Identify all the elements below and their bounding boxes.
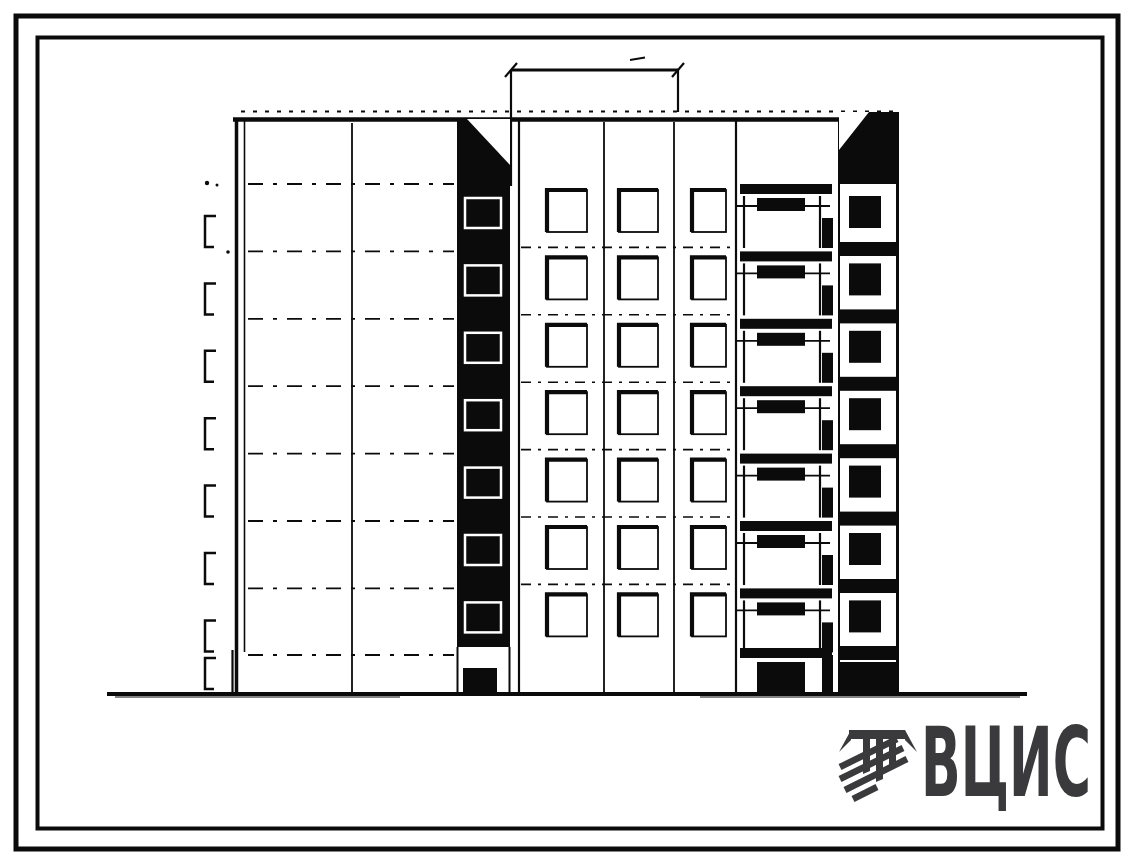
logo-emblem-icon [839, 730, 917, 799]
balcony-door-shadow [757, 198, 805, 211]
loggia-floor-band [839, 444, 897, 458]
loggia-window [849, 600, 881, 632]
balcony-side-shadow [822, 353, 833, 383]
balcony-base-slab [740, 648, 832, 658]
window [547, 594, 587, 636]
balcony-door-shadow [757, 468, 805, 481]
loggia-base-shadow [839, 662, 897, 694]
balcony-door-shadow [757, 602, 805, 615]
loggia-floor-band [839, 579, 897, 593]
window [692, 190, 726, 232]
loggia-window [849, 263, 881, 295]
loggia-floor-band [839, 309, 897, 323]
loggia-floor-band [839, 377, 897, 391]
window [547, 392, 587, 434]
window [619, 392, 658, 434]
scan-speck [226, 250, 230, 254]
balcony-side-shadow [822, 555, 833, 585]
logo-text: ВЦИС [921, 706, 1091, 819]
balcony-slab [740, 588, 832, 598]
loggia-window [849, 196, 881, 228]
window [619, 325, 658, 367]
balcony-base-shadow [822, 655, 833, 694]
loggia-floor-band [839, 242, 897, 256]
loggia-floor-band [839, 512, 897, 526]
window [692, 527, 726, 569]
loggia-base-band [839, 646, 897, 660]
window [692, 392, 726, 434]
balcony-base-shadow [757, 662, 805, 693]
balcony-slab [740, 184, 832, 194]
window [619, 190, 658, 232]
scan-speck [205, 181, 209, 185]
floor-level-mark [205, 620, 216, 651]
balcony-side-shadow [822, 285, 833, 315]
elevation-drawing-svg: ВЦИС [0, 0, 1133, 863]
floor-level-mark [205, 553, 216, 584]
loggia-roof-block [839, 112, 897, 184]
floor-level-mark [205, 216, 216, 247]
balcony-door-shadow [757, 400, 805, 413]
window [692, 594, 726, 636]
balcony-slab [740, 521, 832, 531]
floor-level-mark [205, 658, 216, 689]
floors-layer [205, 184, 897, 652]
balcony-slab [740, 251, 832, 261]
scanned-drawing-page: ВЦИС [0, 0, 1133, 863]
balcony-door-shadow [757, 265, 805, 278]
loggia-window [849, 398, 881, 430]
floor-level-mark [205, 283, 216, 314]
end-wall-edges [233, 119, 245, 694]
floor-level-mark [205, 486, 216, 517]
window [547, 257, 587, 299]
left-margin-marks [205, 181, 454, 689]
balcony-slab [740, 319, 832, 329]
vcis-logo: ВЦИС [839, 706, 1091, 819]
floor-level-mark [205, 418, 216, 449]
floor-level-mark [205, 351, 216, 382]
balcony-side-shadow [822, 488, 833, 518]
loggia-window [849, 533, 881, 565]
window [619, 594, 658, 636]
window [547, 527, 587, 569]
balcony-slab [740, 386, 832, 396]
window [692, 325, 726, 367]
stair-entrance-shadow [463, 668, 497, 694]
window [547, 190, 587, 232]
loggia-window [849, 466, 881, 498]
balcony-door-shadow [757, 333, 805, 346]
emblem-stripe [853, 787, 877, 799]
emblem-left-flare [839, 730, 851, 752]
window [619, 460, 658, 502]
window [692, 460, 726, 502]
dimension-mark [630, 58, 645, 61]
scan-speck [216, 184, 219, 187]
loggia-window [849, 331, 881, 363]
balcony-side-shadow [822, 420, 833, 450]
ground-line [107, 694, 1027, 697]
balcony-side-shadow [822, 622, 833, 652]
window [692, 257, 726, 299]
building-elevation [107, 112, 1027, 698]
window [547, 325, 587, 367]
window [619, 527, 658, 569]
balcony-door-shadow [757, 535, 805, 548]
emblem-right-flare [905, 730, 917, 752]
balcony-slab [740, 454, 832, 464]
ground-level-shadows [740, 646, 897, 694]
window [547, 460, 587, 502]
emblem-beam [849, 730, 905, 739]
balcony-side-shadow [822, 218, 833, 248]
window [619, 257, 658, 299]
